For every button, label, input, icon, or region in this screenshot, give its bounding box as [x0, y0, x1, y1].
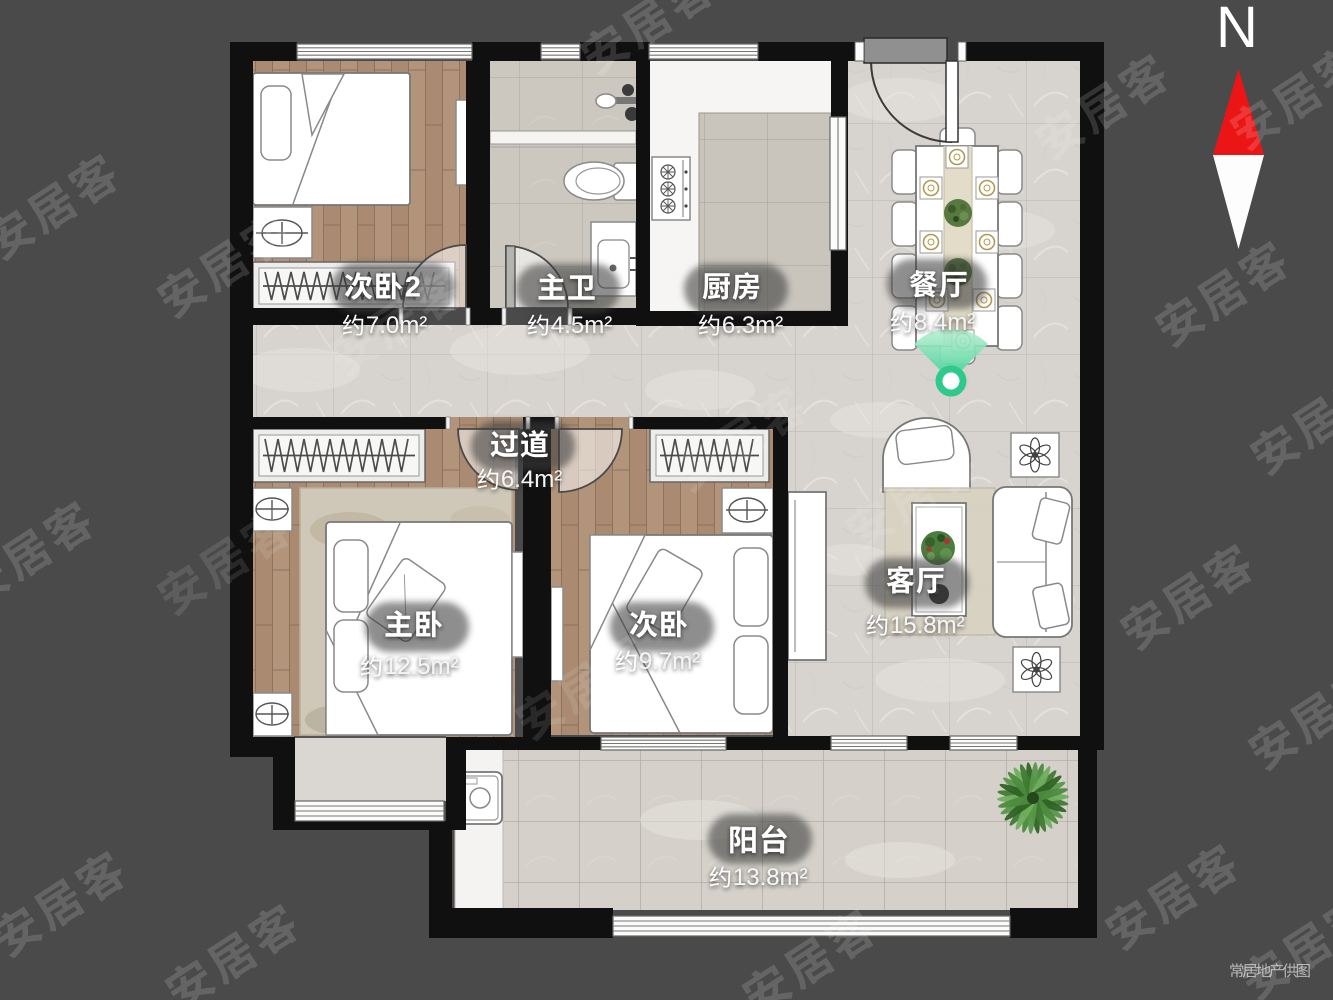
svg-text:6.4m²: 6.4m²: [501, 466, 562, 493]
svg-text:15.8m²: 15.8m²: [890, 612, 965, 639]
svg-text:8.4m²: 8.4m²: [914, 309, 975, 336]
svg-text:12.5m²: 12.5m²: [384, 653, 459, 680]
svg-text:13.8m²: 13.8m²: [733, 864, 808, 891]
svg-text:4.5m²: 4.5m²: [551, 312, 612, 339]
svg-text:6.3m²: 6.3m²: [722, 312, 783, 339]
svg-text:N: N: [1216, 0, 1258, 60]
svg-text:9.7m²: 9.7m²: [639, 648, 700, 675]
